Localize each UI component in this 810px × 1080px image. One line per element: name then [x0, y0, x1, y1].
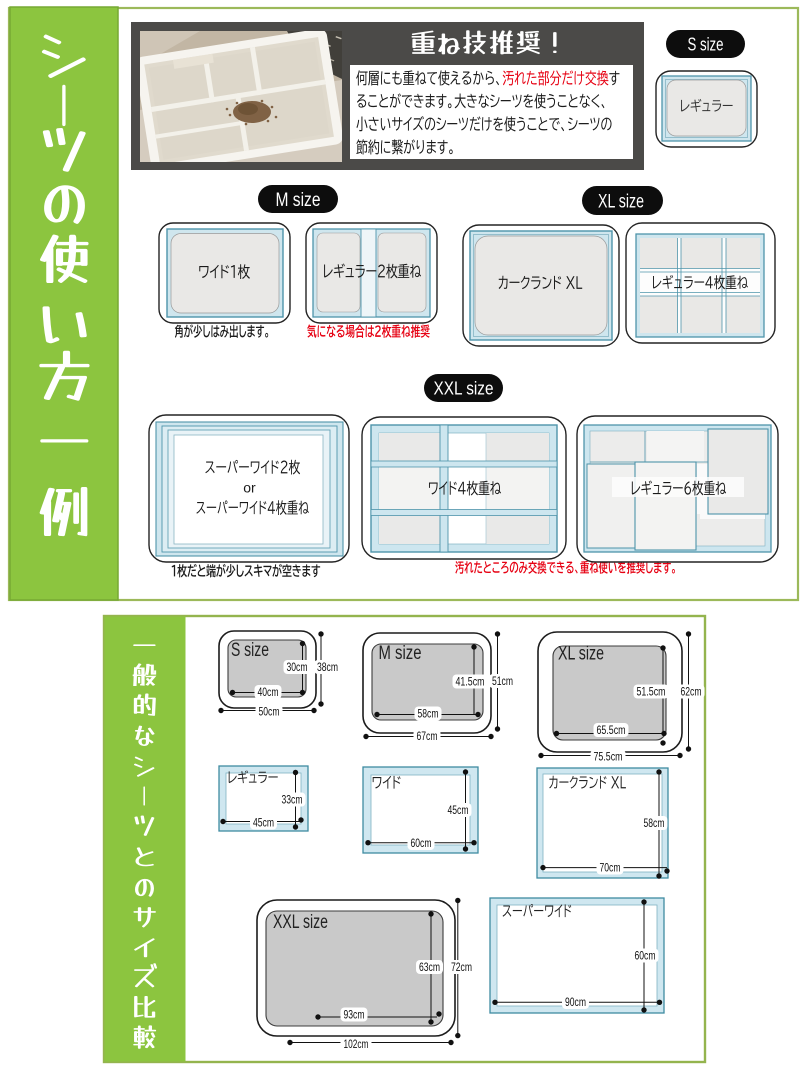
- svg-text:63cm: 63cm: [419, 960, 440, 974]
- svg-text:51.5cm: 51.5cm: [637, 685, 666, 699]
- svg-text:XL size: XL size: [598, 192, 644, 213]
- svg-text:S size: S size: [688, 34, 724, 55]
- svg-text:65.5cm: 65.5cm: [597, 723, 626, 737]
- svg-text:M size: M size: [276, 190, 321, 211]
- svg-text:33cm: 33cm: [282, 793, 303, 807]
- svg-text:XL size: XL size: [558, 643, 604, 665]
- svg-text:90cm: 90cm: [565, 995, 586, 1009]
- svg-text:75.5cm: 75.5cm: [594, 750, 623, 764]
- svg-text:102cm: 102cm: [344, 1037, 369, 1051]
- svg-text:50cm: 50cm: [259, 705, 280, 719]
- svg-text:70cm: 70cm: [600, 861, 621, 875]
- svg-text:S size: S size: [231, 640, 269, 661]
- svg-text:XXL size: XXL size: [273, 911, 328, 933]
- svg-text:41.5cm: 41.5cm: [456, 675, 485, 689]
- svg-text:72cm: 72cm: [451, 960, 472, 974]
- svg-text:62cm: 62cm: [681, 685, 702, 699]
- svg-text:93cm: 93cm: [344, 1008, 365, 1022]
- svg-text:58cm: 58cm: [418, 707, 439, 721]
- svg-text:60cm: 60cm: [635, 949, 656, 963]
- svg-text:or: or: [243, 480, 256, 496]
- svg-text:60cm: 60cm: [411, 836, 432, 850]
- svg-text:51cm: 51cm: [492, 674, 513, 688]
- svg-text:30cm: 30cm: [287, 660, 308, 674]
- svg-text:XXL size: XXL size: [434, 378, 494, 399]
- svg-text:40cm: 40cm: [258, 685, 279, 699]
- svg-text:58cm: 58cm: [644, 816, 665, 830]
- svg-text:67cm: 67cm: [417, 729, 438, 743]
- svg-text:45cm: 45cm: [253, 816, 274, 830]
- svg-text:45cm: 45cm: [448, 803, 469, 817]
- svg-text:M size: M size: [379, 642, 422, 664]
- svg-text:38cm: 38cm: [317, 660, 338, 674]
